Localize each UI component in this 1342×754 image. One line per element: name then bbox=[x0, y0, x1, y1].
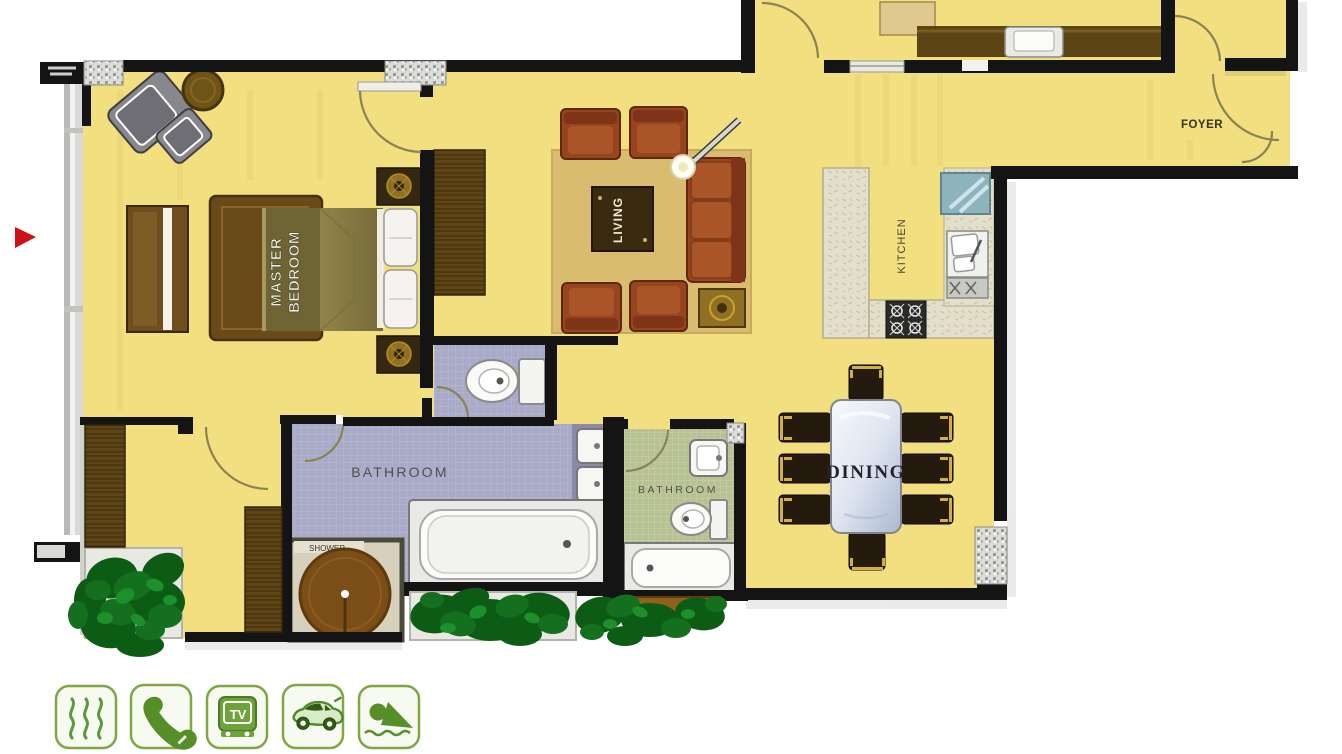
svg-text:LIVING: LIVING bbox=[611, 197, 625, 243]
svg-text:KITCHEN: KITCHEN bbox=[896, 218, 908, 273]
svg-text:BATHROOM: BATHROOM bbox=[638, 484, 718, 496]
svg-text:BATHROOM: BATHROOM bbox=[351, 464, 448, 480]
svg-text:TV: TV bbox=[230, 707, 247, 722]
svg-text:MASTER: MASTER bbox=[268, 237, 285, 306]
svg-text:FOYER: FOYER bbox=[1181, 119, 1223, 131]
svg-text:SHOWER: SHOWER bbox=[309, 544, 345, 553]
svg-text:DINING: DINING bbox=[826, 462, 906, 483]
svg-text:BEDROOM: BEDROOM bbox=[286, 231, 303, 313]
